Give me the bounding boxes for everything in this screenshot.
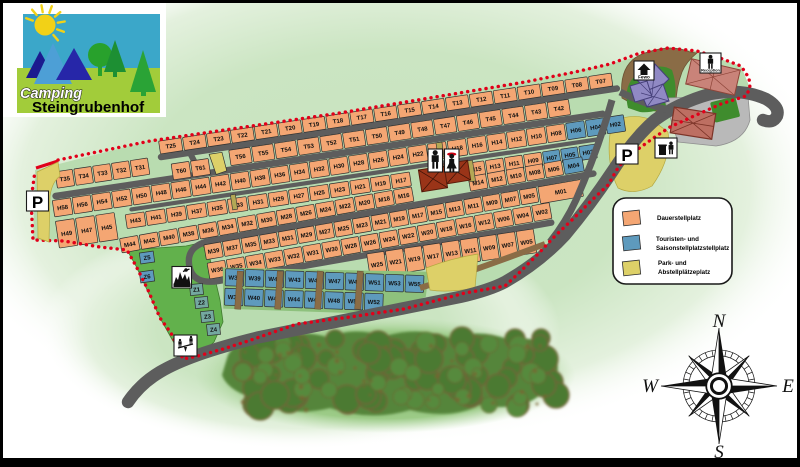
svg-text:P: P	[32, 193, 43, 212]
svg-text:Park- und: Park- und	[658, 260, 687, 267]
svg-text:W53: W53	[388, 281, 401, 287]
svg-text:Z4: Z4	[210, 327, 218, 334]
svg-text:Steingrubenhof: Steingrubenhof	[32, 99, 145, 116]
svg-text:W40: W40	[248, 296, 261, 302]
svg-text:Z3: Z3	[204, 314, 212, 321]
svg-text:Touristen- und: Touristen- und	[656, 236, 699, 243]
svg-text:W44: W44	[288, 297, 301, 303]
svg-text:Z1: Z1	[193, 287, 201, 294]
svg-text:Z2: Z2	[198, 300, 206, 307]
svg-text:W43: W43	[288, 278, 301, 284]
svg-text:Abstellplätzeplatz: Abstellplätzeplatz	[658, 269, 710, 276]
svg-text:Fewo: Fewo	[638, 75, 650, 80]
svg-text:E: E	[781, 376, 794, 397]
svg-text:W48: W48	[328, 298, 341, 304]
svg-text:Saisonstellplatzstellplatz: Saisonstellplatzstellplatz	[656, 245, 729, 252]
svg-text:W51: W51	[368, 280, 381, 286]
svg-text:W52: W52	[368, 300, 381, 306]
svg-text:Dauerstellplatz: Dauerstellplatz	[657, 215, 701, 222]
svg-text:W47: W47	[328, 279, 341, 285]
svg-text:W: W	[642, 376, 660, 397]
svg-text:N: N	[712, 311, 727, 332]
svg-text:P: P	[621, 146, 632, 165]
svg-text:W39: W39	[248, 276, 261, 282]
svg-text:Reception: Reception	[701, 68, 720, 73]
svg-text:W55: W55	[408, 282, 421, 288]
